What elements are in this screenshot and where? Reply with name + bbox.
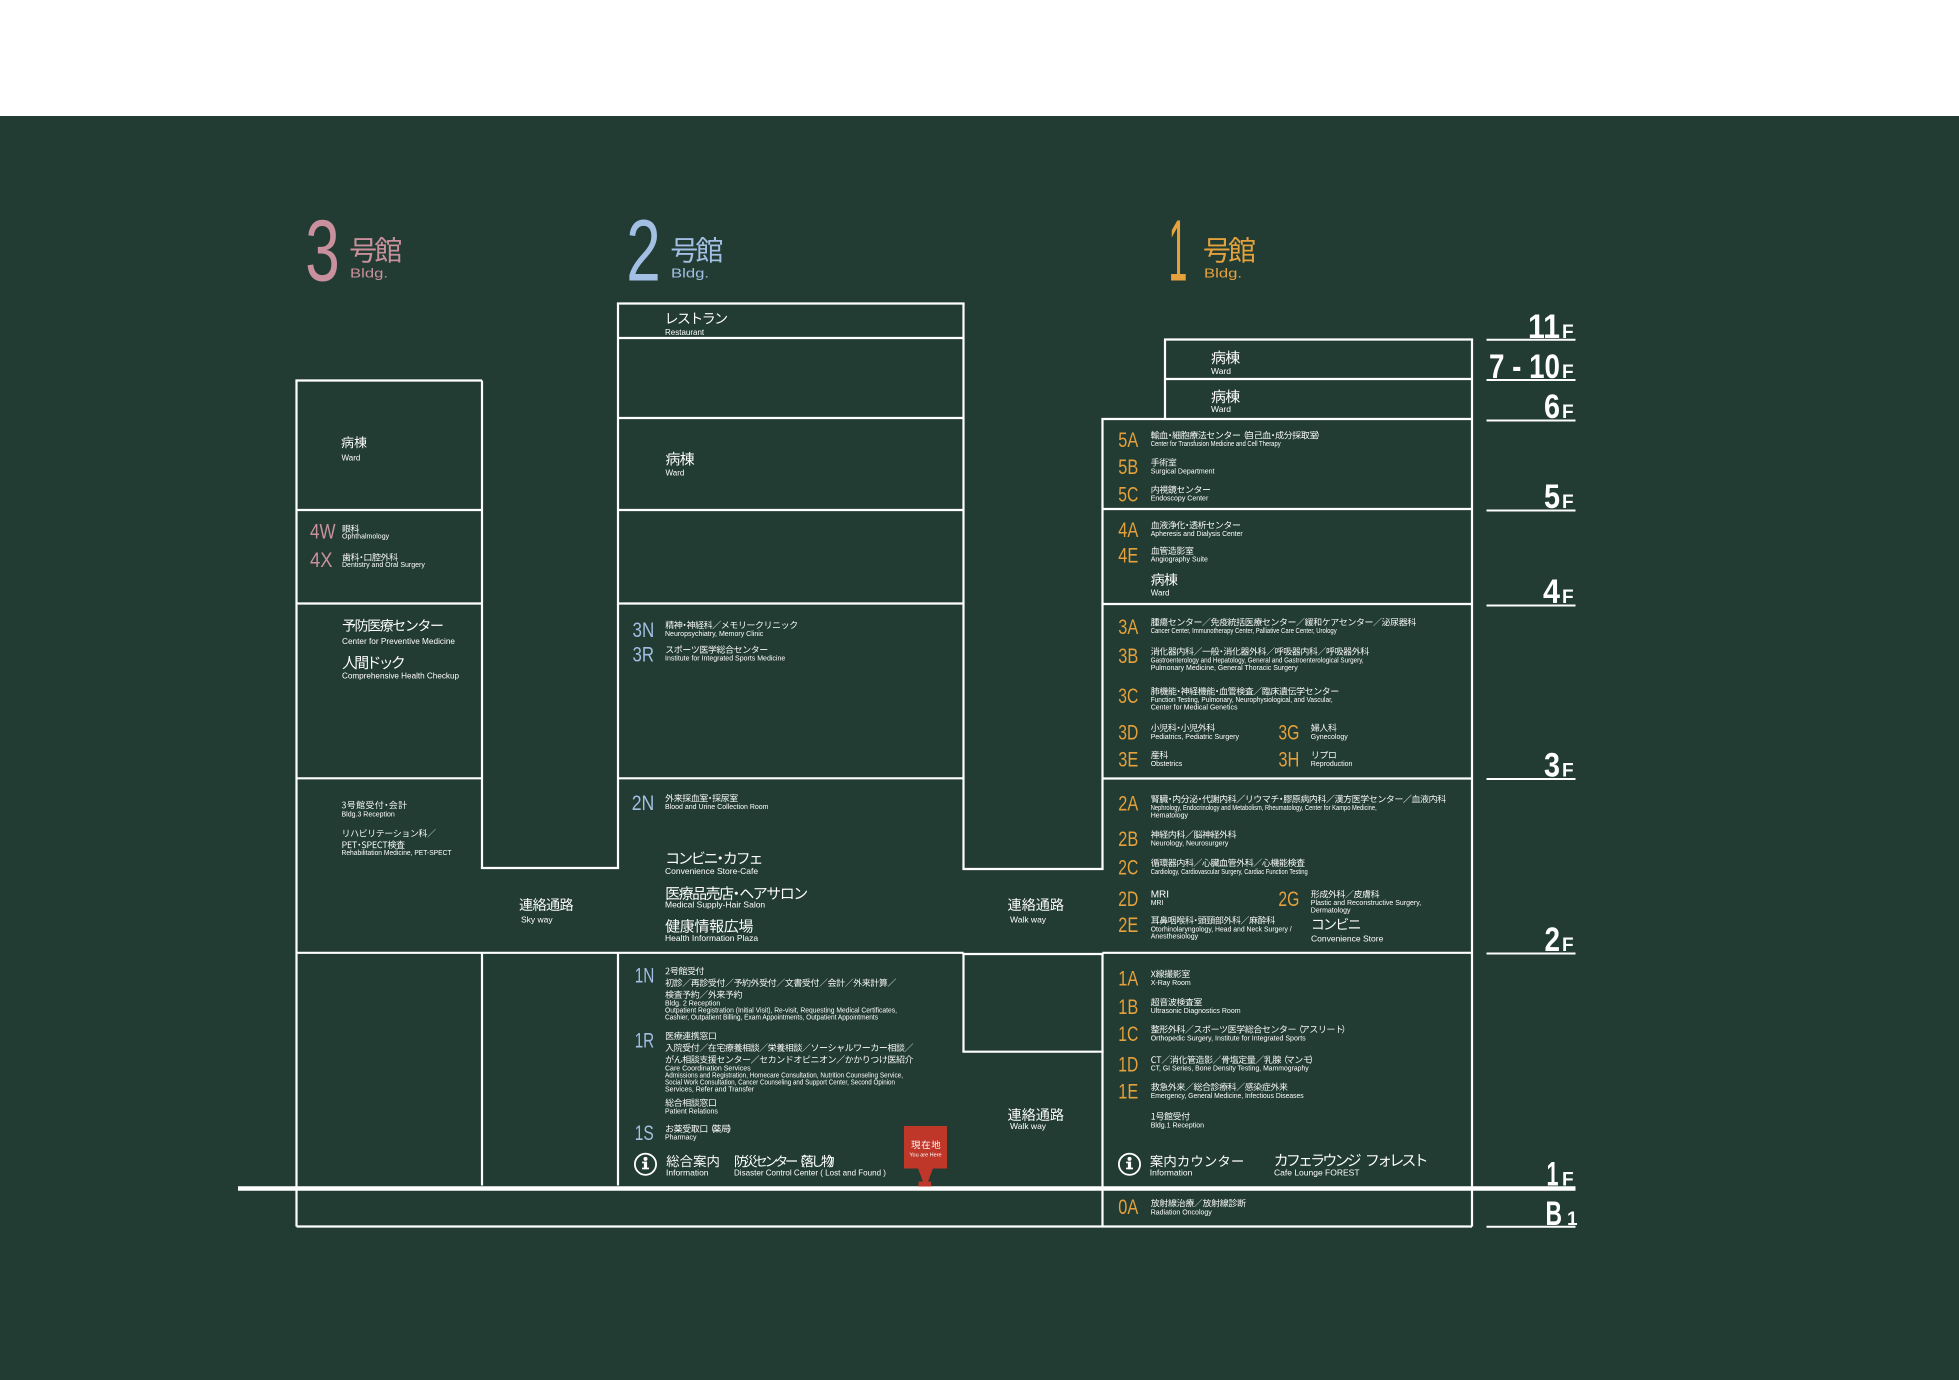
- svg-text:3G: 3G: [1278, 721, 1299, 745]
- svg-text:Social Work Consultation, Canc: Social Work Consultation, Cancer Counsel…: [665, 1080, 895, 1087]
- svg-text:F: F: [1562, 362, 1574, 383]
- svg-text:5B: 5B: [1118, 455, 1138, 479]
- svg-text:Endoscopy Center: Endoscopy Center: [1151, 496, 1209, 503]
- svg-text:F: F: [1562, 1170, 1574, 1191]
- svg-text:Pediatrics, Pediatric Surgery: Pediatrics, Pediatric Surgery: [1151, 734, 1240, 741]
- svg-text:You are Here: You are Here: [909, 1153, 941, 1159]
- svg-text:4E: 4E: [1118, 543, 1138, 567]
- svg-text:Anesthesiology: Anesthesiology: [1151, 934, 1199, 941]
- svg-text:4A: 4A: [1118, 518, 1138, 542]
- svg-text:Ophthalmology: Ophthalmology: [342, 533, 390, 540]
- svg-text:2: 2: [626, 201, 661, 299]
- svg-text:X-Ray Room: X-Ray Room: [1151, 980, 1191, 987]
- svg-text:B: B: [1546, 1195, 1563, 1233]
- svg-text:2N: 2N: [632, 791, 655, 815]
- svg-text:Pharmacy: Pharmacy: [665, 1135, 697, 1142]
- svg-text:1D: 1D: [1118, 1052, 1138, 1076]
- svg-text:Institute for Integrated Sport: Institute for Integrated Sports Medicine: [665, 656, 785, 663]
- svg-text:2D: 2D: [1118, 887, 1138, 911]
- svg-text:Health Information Plaza: Health Information Plaza: [665, 933, 758, 943]
- svg-text:F: F: [1562, 492, 1574, 513]
- svg-text:2: 2: [1545, 921, 1561, 959]
- svg-text:F: F: [1562, 761, 1574, 782]
- svg-text:4W: 4W: [310, 519, 336, 543]
- svg-text:Function Testing, Pulmonary, N: Function Testing, Pulmonary, Neurophysio…: [1151, 697, 1333, 704]
- svg-text:Neurology, Neurosurgery: Neurology, Neurosurgery: [1151, 841, 1229, 848]
- svg-text:Center for Preventive Medicine: Center for Preventive Medicine: [342, 637, 456, 646]
- svg-text:Nephrology, Endocrinology and: Nephrology, Endocrinology and Metabolism…: [1151, 805, 1377, 812]
- svg-text:Gynecology: Gynecology: [1311, 734, 1348, 741]
- svg-text:Angiography Suite: Angiography Suite: [1151, 557, 1208, 564]
- svg-text:3A: 3A: [1118, 615, 1138, 639]
- svg-text:Radiation Oncology: Radiation Oncology: [1151, 1209, 1213, 1216]
- svg-text:1: 1: [1547, 1156, 1559, 1194]
- svg-text:Gastroenterology and Hepatolog: Gastroenterology and Hepatology, General…: [1151, 657, 1364, 664]
- svg-text:1A: 1A: [1118, 967, 1138, 991]
- svg-text:5: 5: [1544, 478, 1560, 516]
- svg-text:Convenience Store-Cafe: Convenience Store-Cafe: [665, 866, 758, 876]
- svg-text:Bldg.3 Reception: Bldg.3 Reception: [342, 812, 395, 819]
- svg-text:2A: 2A: [1118, 792, 1138, 816]
- svg-text:Medical Supply-Hair Salon: Medical Supply-Hair Salon: [665, 899, 765, 909]
- svg-text:1: 1: [1169, 201, 1188, 299]
- svg-text:CT, GI Series, Bone Density Te: CT, GI Series, Bone Density Testing, Mam…: [1151, 1066, 1309, 1073]
- svg-text:Ultrasonic Diagnostics Room: Ultrasonic Diagnostics Room: [1151, 1008, 1241, 1015]
- svg-text:Cashier, Outpatient Billing, E: Cashier, Outpatient Billing, Exam Appoin…: [665, 1015, 878, 1022]
- svg-text:Patient Relations: Patient Relations: [665, 1109, 718, 1116]
- svg-text:Ward: Ward: [1211, 366, 1231, 376]
- svg-text:Rehabilitation Medicine, PET-S: Rehabilitation Medicine, PET-SPECT: [342, 850, 453, 857]
- svg-text:Outpatient Registration (Initi: Outpatient Registration (Initial Visit),…: [665, 1008, 897, 1015]
- svg-text:3H: 3H: [1278, 748, 1299, 772]
- svg-text:Bldg.: Bldg.: [350, 267, 388, 281]
- svg-text:1C: 1C: [1118, 1022, 1138, 1046]
- svg-text:Pulmonary Medicine, General Th: Pulmonary Medicine, General Thoracic Sur…: [1151, 665, 1298, 672]
- svg-text:MRI: MRI: [1151, 890, 1169, 901]
- svg-text:Obstetrics: Obstetrics: [1151, 761, 1183, 768]
- svg-text:Restaurant: Restaurant: [665, 328, 705, 337]
- svg-text:Center for Medical Genetics: Center for Medical Genetics: [1151, 705, 1238, 712]
- svg-text:1B: 1B: [1118, 995, 1138, 1019]
- svg-text:Information: Information: [666, 1167, 709, 1177]
- svg-text:7 - 10: 7 - 10: [1489, 348, 1560, 386]
- svg-text:2G: 2G: [1278, 887, 1299, 911]
- svg-text:Information: Information: [1150, 1167, 1193, 1177]
- svg-text:Bldg.: Bldg.: [1204, 267, 1242, 281]
- svg-text:F: F: [1562, 587, 1574, 608]
- svg-text:F: F: [1562, 322, 1574, 343]
- svg-text:0A: 0A: [1118, 1195, 1138, 1219]
- svg-text:F: F: [1562, 935, 1574, 956]
- svg-text:Apheresis and Dialysis Center: Apheresis and Dialysis Center: [1151, 531, 1244, 538]
- svg-text:Care Coordination Services: Care Coordination Services: [665, 1066, 751, 1073]
- svg-text:Disaster Control Center ( Lost: Disaster Control Center ( Lost and Found…: [734, 1167, 886, 1177]
- svg-text:Blood and Urine Collection Roo: Blood and Urine Collection Room: [665, 804, 769, 811]
- svg-text:1N: 1N: [635, 964, 655, 988]
- svg-text:3: 3: [1544, 747, 1560, 785]
- svg-text:Center for Transfusion Medicin: Center for Transfusion Medicine and Cell…: [1151, 441, 1281, 448]
- svg-text:3E: 3E: [1118, 748, 1138, 772]
- svg-text:1E: 1E: [1118, 1080, 1138, 1104]
- svg-text:Reproduction: Reproduction: [1311, 761, 1353, 768]
- svg-text:2C: 2C: [1118, 856, 1138, 880]
- svg-text:Admissions and Registration, H: Admissions and Registration, Homecare Co…: [665, 1073, 903, 1080]
- svg-text:Neuropsychiatry, Memory Clinic: Neuropsychiatry, Memory Clinic: [665, 631, 764, 638]
- svg-text:5A: 5A: [1118, 428, 1138, 452]
- svg-text:Comprehensive Health Checkup: Comprehensive Health Checkup: [342, 672, 460, 681]
- svg-text:3D: 3D: [1118, 721, 1138, 745]
- svg-text:Dentistry and Oral Surgery: Dentistry and Oral Surgery: [342, 562, 425, 569]
- svg-text:Plastic and Reconstructive Sur: Plastic and Reconstructive Surgery,: [1311, 900, 1421, 907]
- svg-text:Hematology: Hematology: [1151, 812, 1189, 819]
- svg-text:1R: 1R: [635, 1029, 655, 1053]
- svg-text:3R: 3R: [633, 643, 655, 667]
- svg-text:Dermatology: Dermatology: [1311, 908, 1351, 915]
- svg-text:6: 6: [1544, 388, 1560, 426]
- svg-text:Bldg.: Bldg.: [671, 267, 709, 281]
- svg-text:F: F: [1562, 402, 1574, 423]
- svg-text:2B: 2B: [1118, 827, 1138, 851]
- svg-text:1S: 1S: [635, 1121, 654, 1145]
- svg-text:Cafe Lounge FOREST: Cafe Lounge FOREST: [1274, 1167, 1360, 1177]
- svg-text:Bldg.1 Reception: Bldg.1 Reception: [1151, 1122, 1204, 1129]
- svg-text:4X: 4X: [310, 548, 333, 572]
- svg-text:Ward: Ward: [666, 469, 685, 478]
- svg-text:Ward: Ward: [342, 454, 361, 463]
- svg-text:Bldg. 2 Reception: Bldg. 2 Reception: [665, 1001, 720, 1008]
- svg-text:Orthopedic Surgery, Institute: Orthopedic Surgery, Institute for Integr…: [1151, 1035, 1306, 1042]
- svg-text:Cardiology, Cardiovascular Sur: Cardiology, Cardiovascular Surgery, Card…: [1151, 869, 1308, 876]
- svg-text:Cancer Center, Immunotherapy C: Cancer Center, Immunotherapy Center, Pal…: [1151, 628, 1337, 635]
- svg-text:MRI: MRI: [1151, 900, 1164, 907]
- svg-text:11: 11: [1528, 308, 1560, 346]
- svg-text:Services, Refer and Transfer: Services, Refer and Transfer: [665, 1087, 755, 1094]
- svg-text:Convenience Store: Convenience Store: [1311, 933, 1384, 943]
- svg-text:Ward: Ward: [1151, 589, 1170, 598]
- svg-text:1: 1: [1567, 1209, 1578, 1230]
- svg-text:Walk way: Walk way: [1010, 915, 1047, 925]
- svg-text:Otorhinolaryngology, Head and: Otorhinolaryngology, Head and Neck Surge…: [1151, 926, 1292, 933]
- svg-text:5C: 5C: [1118, 482, 1138, 506]
- svg-text:4: 4: [1543, 573, 1560, 611]
- svg-text:3B: 3B: [1118, 644, 1138, 668]
- svg-text:Ward: Ward: [1211, 404, 1231, 414]
- svg-text:Sky way: Sky way: [521, 915, 553, 925]
- svg-text:2E: 2E: [1118, 913, 1138, 937]
- svg-text:Emergency, General Medicine, I: Emergency, General Medicine, Infectious …: [1151, 1093, 1304, 1100]
- svg-text:3C: 3C: [1118, 684, 1138, 708]
- svg-text:Walk way: Walk way: [1010, 1121, 1047, 1131]
- svg-text:3N: 3N: [633, 618, 655, 642]
- svg-text:Surgical Department: Surgical Department: [1151, 468, 1215, 475]
- svg-text:3: 3: [305, 201, 340, 299]
